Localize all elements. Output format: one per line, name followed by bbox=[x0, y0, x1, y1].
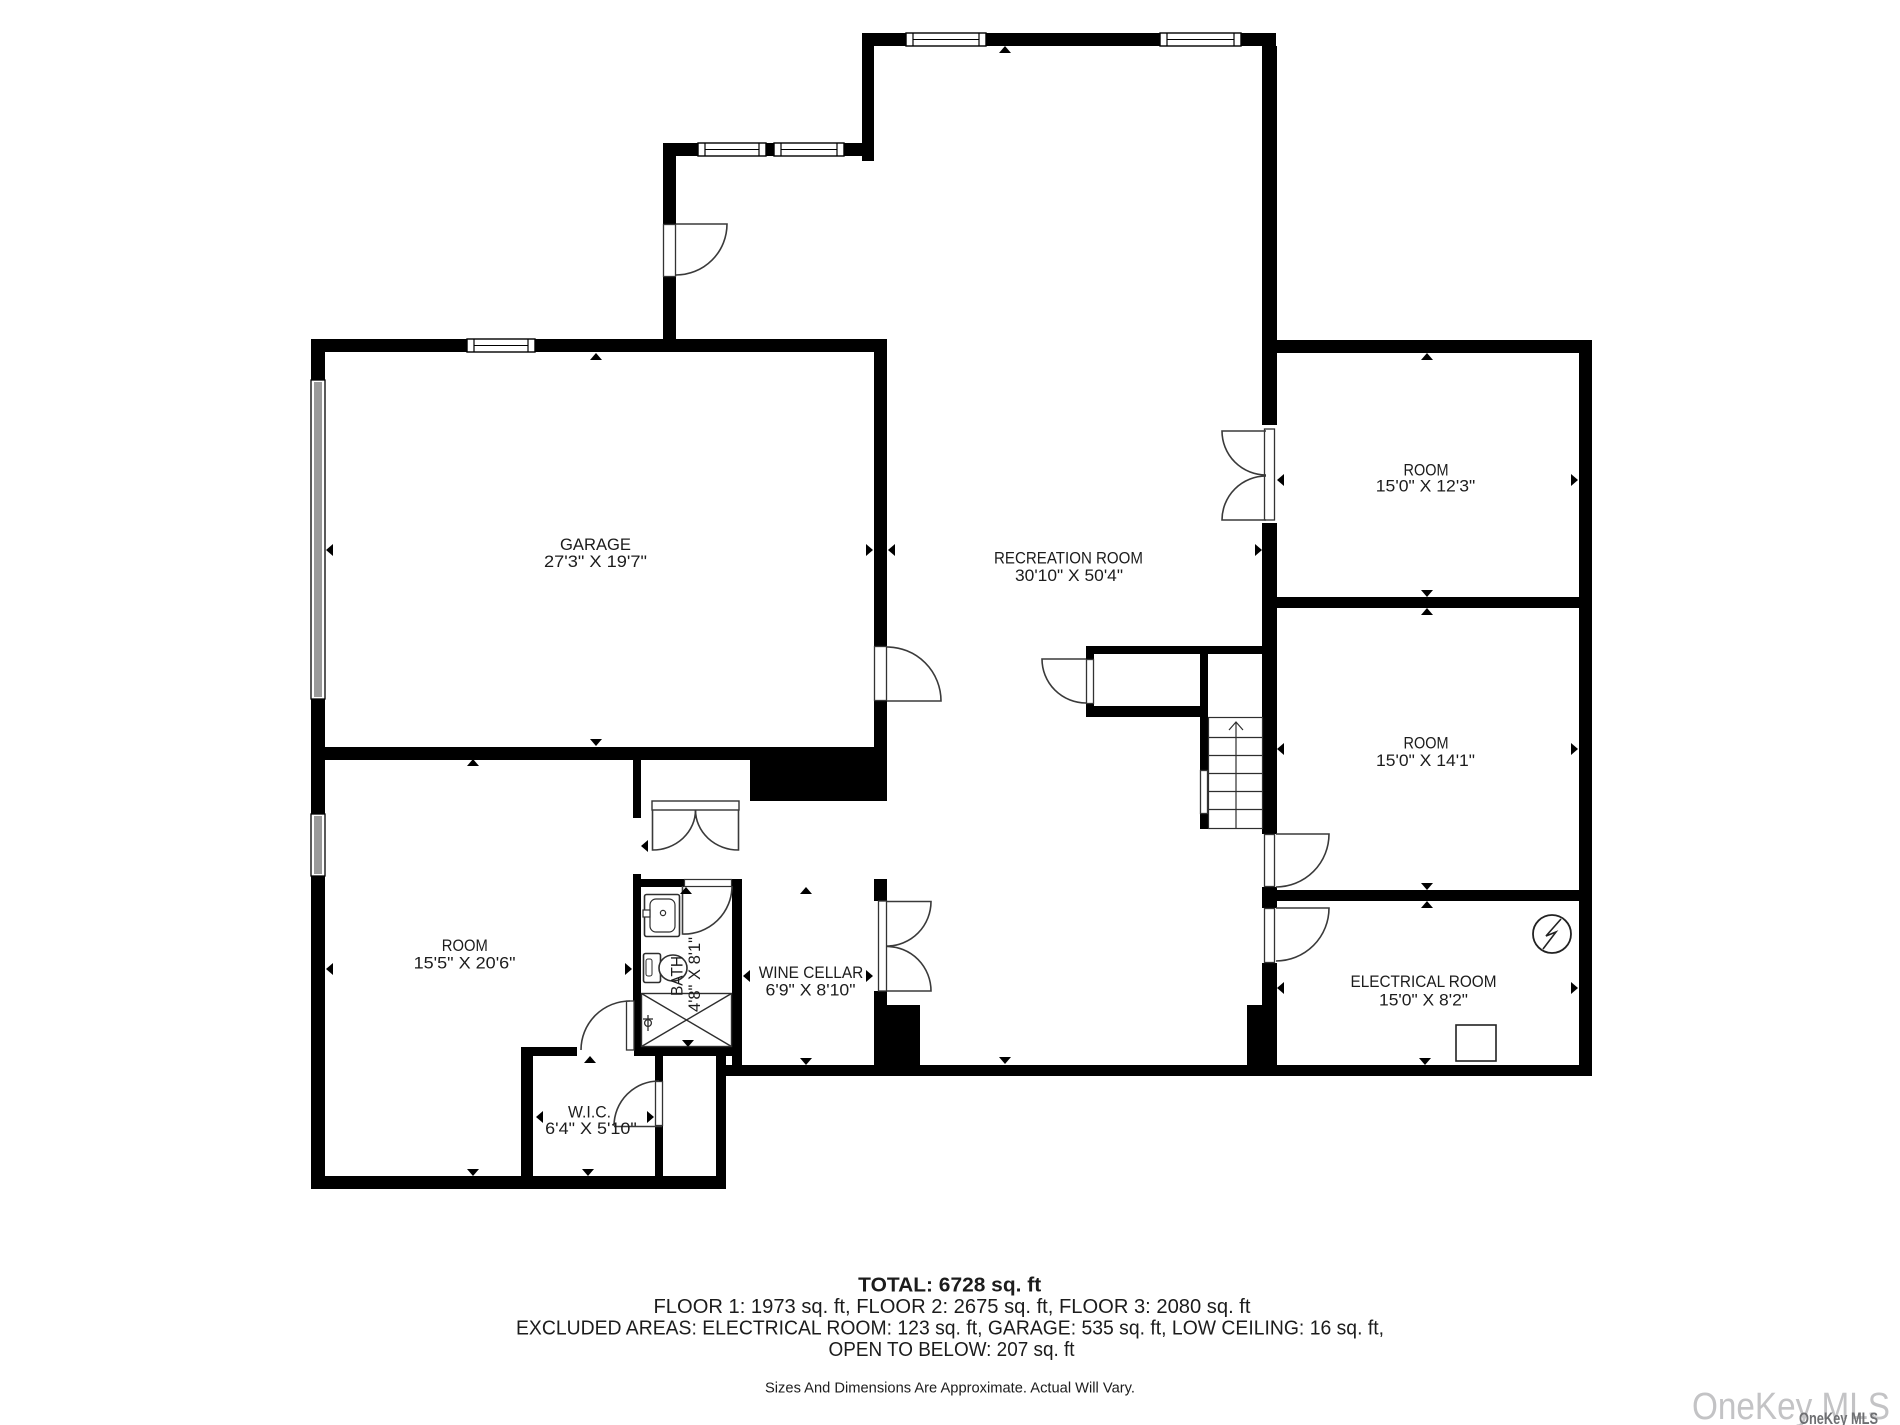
svg-text:ELECTRICAL ROOM: ELECTRICAL ROOM bbox=[1351, 972, 1497, 991]
svg-text:ROOM: ROOM bbox=[1404, 734, 1449, 753]
svg-text:15'0" X 14'1": 15'0" X 14'1" bbox=[1376, 751, 1475, 770]
svg-text:FLOOR 1: 1973 sq. ft, FLOOR 2:: FLOOR 1: 1973 sq. ft, FLOOR 2: 2675 sq. … bbox=[654, 1295, 1251, 1318]
svg-text:OneKey MLS: OneKey MLS bbox=[1799, 1410, 1878, 1425]
svg-text:6'9" X 8'10": 6'9" X 8'10" bbox=[766, 981, 856, 1000]
svg-text:ROOM: ROOM bbox=[442, 936, 488, 955]
svg-text:6'4" X 5'10": 6'4" X 5'10" bbox=[545, 1119, 637, 1138]
svg-text:OPEN TO BELOW: 207 sq. ft: OPEN TO BELOW: 207 sq. ft bbox=[829, 1338, 1075, 1361]
svg-text:15'5" X 20'6": 15'5" X 20'6" bbox=[414, 954, 516, 973]
svg-text:TOTAL: 6728 sq. ft: TOTAL: 6728 sq. ft bbox=[858, 1274, 1041, 1297]
svg-text:BATH: BATH bbox=[668, 956, 687, 996]
svg-text:WINE CELLAR: WINE CELLAR bbox=[759, 963, 864, 982]
svg-text:EXCLUDED AREAS: ELECTRICAL ROO: EXCLUDED AREAS: ELECTRICAL ROOM: 123 sq.… bbox=[516, 1317, 1384, 1340]
svg-text:Sizes And Dimensions Are Appro: Sizes And Dimensions Are Approximate. Ac… bbox=[765, 1380, 1135, 1397]
svg-text:RECREATION ROOM: RECREATION ROOM bbox=[994, 549, 1143, 568]
svg-text:30'10" X 50'4": 30'10" X 50'4" bbox=[1015, 566, 1123, 585]
svg-text:27'3" X 19'7": 27'3" X 19'7" bbox=[544, 552, 647, 571]
svg-text:15'0" X 8'2": 15'0" X 8'2" bbox=[1379, 991, 1468, 1010]
svg-text:15'0" X 12'3": 15'0" X 12'3" bbox=[1376, 477, 1476, 496]
svg-text:4'8" X 8'1": 4'8" X 8'1" bbox=[685, 937, 704, 1012]
